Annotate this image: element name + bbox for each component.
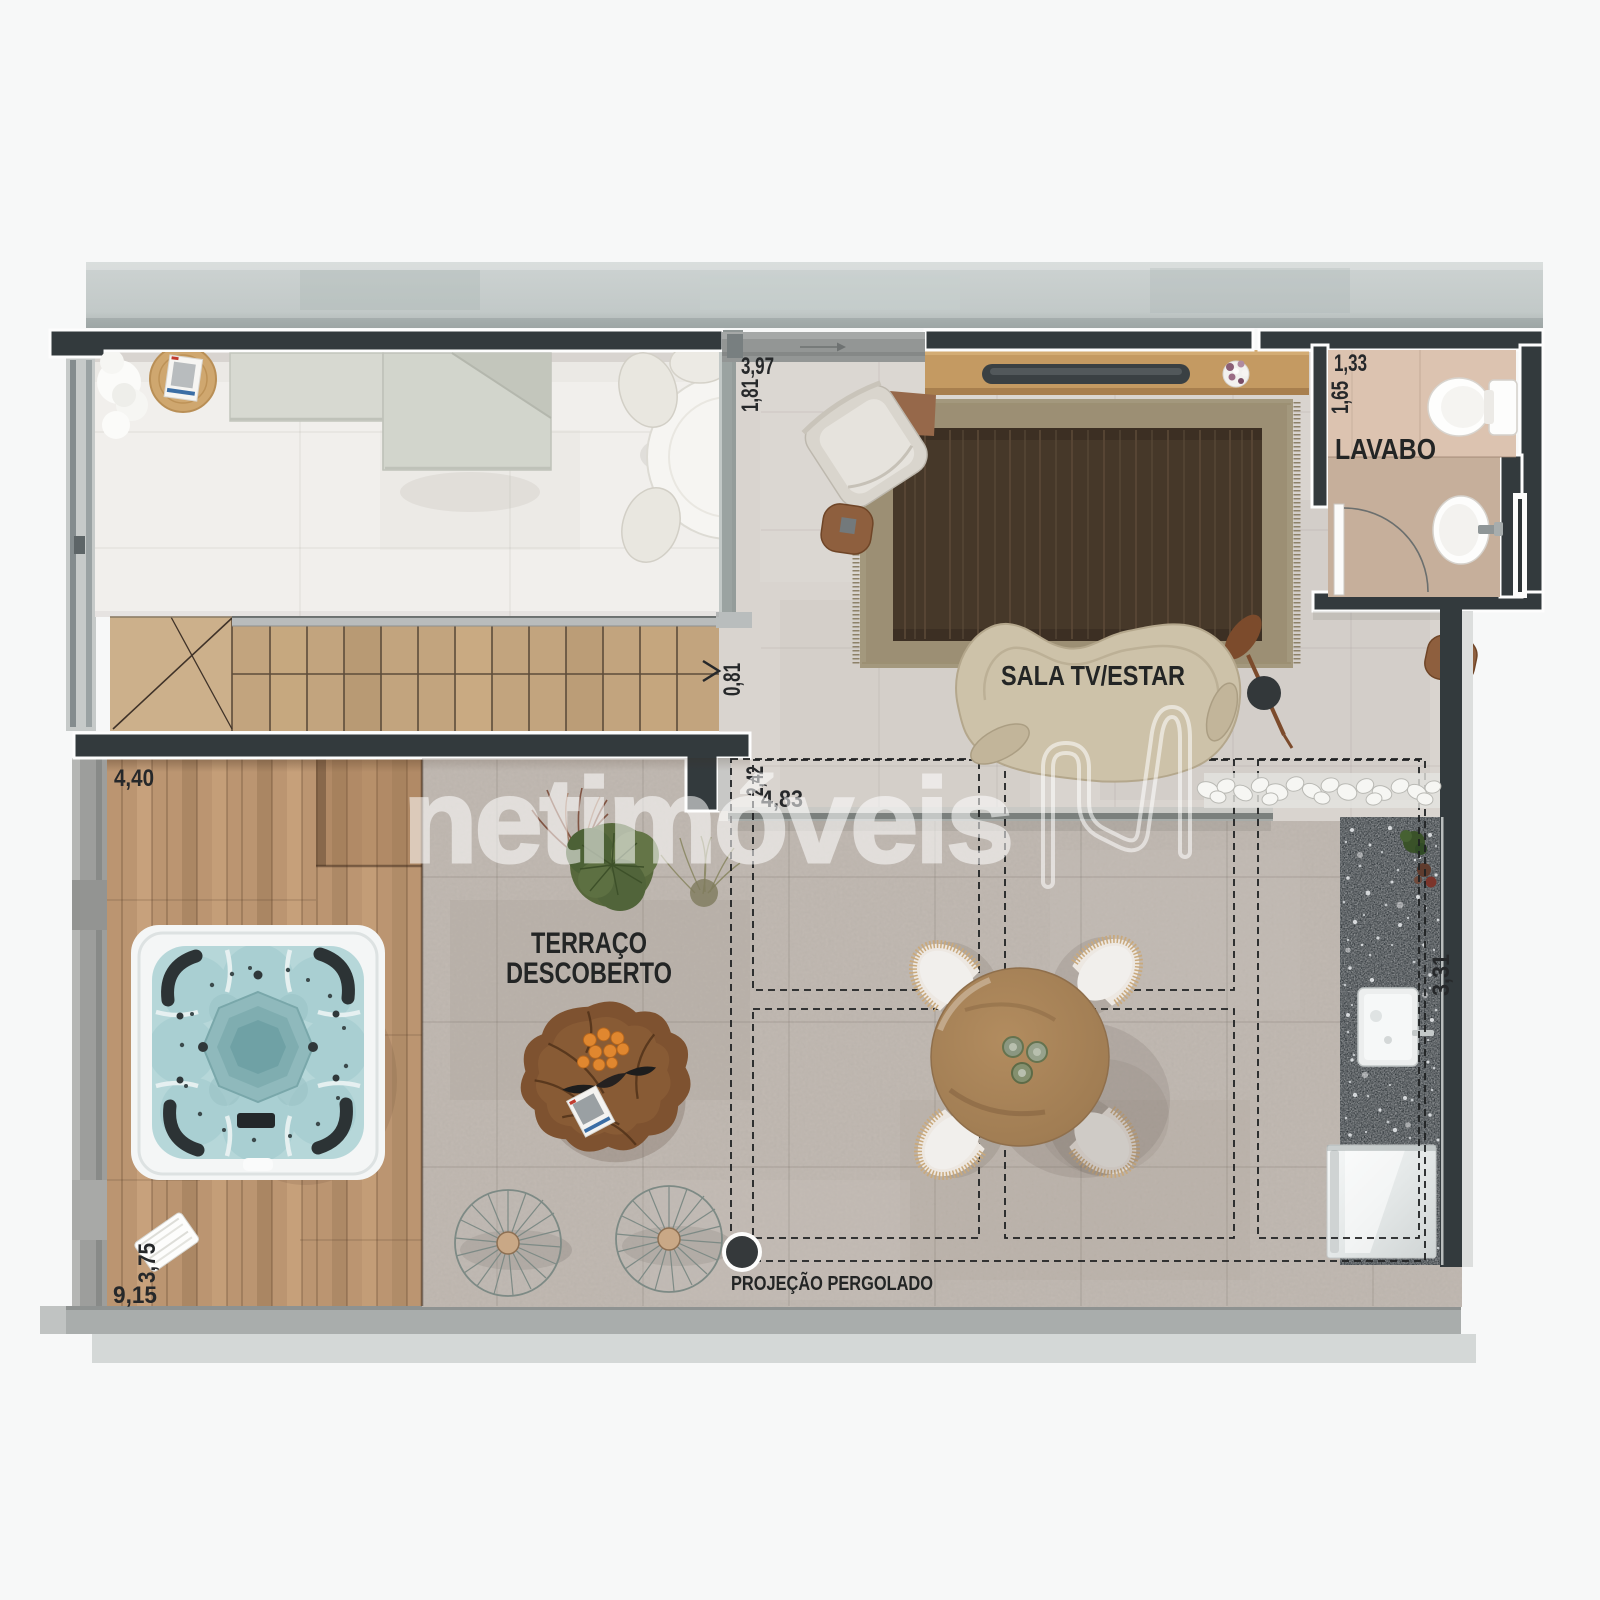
svg-text:TERRAÇO: TERRAÇO (531, 927, 647, 960)
svg-text:0,81: 0,81 (719, 663, 746, 696)
svg-text:LAVABO: LAVABO (1335, 434, 1436, 466)
svg-text:1,81: 1,81 (737, 379, 764, 412)
svg-text:1,33: 1,33 (1334, 350, 1367, 377)
svg-text:netimóveis: netimóveis (403, 754, 1011, 888)
svg-text:3,75: 3,75 (134, 1243, 161, 1283)
svg-text:3,97: 3,97 (741, 353, 774, 380)
svg-text:PROJEÇÃO PERGOLADO: PROJEÇÃO PERGOLADO (731, 1272, 933, 1295)
svg-text:9,15: 9,15 (113, 1282, 157, 1309)
svg-text:4,40: 4,40 (114, 765, 154, 792)
svg-text:1,65: 1,65 (1327, 381, 1354, 414)
svg-text:3,31: 3,31 (1428, 954, 1455, 996)
svg-text:DESCOBERTO: DESCOBERTO (506, 957, 672, 990)
